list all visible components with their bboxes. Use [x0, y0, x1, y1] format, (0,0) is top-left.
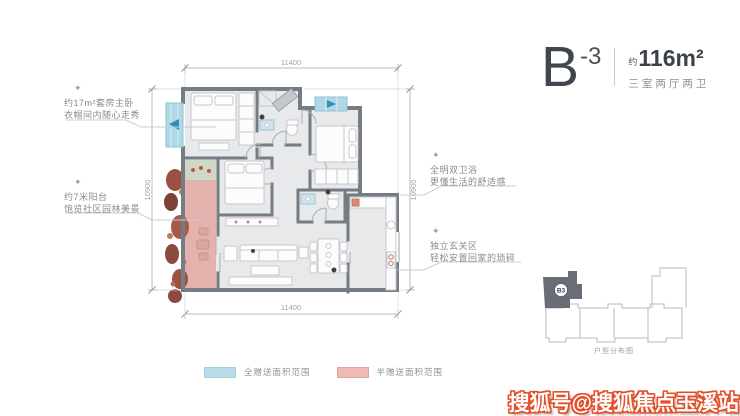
unit-variant: -3: [580, 45, 601, 69]
bay-window-left: [166, 103, 183, 147]
balcony-furniture: [197, 228, 209, 260]
title-block: B -3 约 116m² 三室两厅两卫: [541, 44, 709, 91]
layout-type: 三室两厅两卫: [628, 76, 709, 91]
dim-bottom: 11400: [281, 303, 301, 312]
bay-window-top: [315, 97, 347, 111]
annotation-subtitle: 饱览社区园林美景: [64, 203, 140, 216]
sparkle-icon: ✦: [74, 176, 140, 189]
sparkle-icon: ✦: [432, 149, 506, 162]
title-divider: [614, 48, 615, 86]
annotation-master-bedroom: ✦ 约17m²套房主卧 衣帽间内随心走秀: [64, 82, 140, 122]
dim-left: 10900: [143, 180, 152, 201]
legend-label: 半赠送面积范围: [377, 366, 444, 378]
annotation-subtitle: 衣帽间内随心走秀: [64, 109, 140, 122]
coffee-table: [251, 266, 279, 275]
key-plan-marker: B3: [557, 288, 566, 295]
sofa: [240, 245, 297, 261]
legend: 全赠送面积范围 半赠送面积范围: [204, 366, 443, 378]
annotation-title: 独立玄关区: [430, 240, 516, 253]
floorplan-page: 11400 11400 10900 10900 B3 户型分布图 ✦: [0, 0, 740, 416]
bedroom-2: [225, 161, 264, 204]
bedroom-3: [315, 126, 358, 184]
legend-label: 全赠送面积范围: [244, 366, 311, 378]
tv-cabinet: [229, 277, 292, 285]
annotation-balcony: ✦ 约7米阳台 饱览社区园林美景: [64, 176, 140, 216]
annotation-entry: ✦ 独立玄关区 轻松安置回家的琐碎: [430, 225, 516, 265]
sparkle-icon: ✦: [74, 82, 140, 95]
area-value: 116m²: [638, 47, 703, 70]
dim-top: 11400: [281, 58, 301, 67]
legend-item-full-area: 全赠送面积范围: [204, 366, 311, 378]
key-plan-caption: 户型分布图: [594, 346, 634, 355]
annotation-title: 约7米阳台: [64, 191, 140, 204]
annotation-subtitle: 轻松安置回家的琐碎: [430, 252, 516, 265]
legend-item-half-area: 半赠送面积范围: [337, 366, 444, 378]
sparkle-icon: ✦: [432, 225, 516, 238]
legend-swatch-blue: [204, 367, 236, 378]
area-prefix: 约: [628, 55, 637, 70]
annotation-subtitle: 更懂生活的舒适感: [430, 176, 506, 189]
annotation-bathrooms: ✦ 全明双卫浴 更懂生活的舒适感: [430, 149, 506, 189]
legend-swatch-pink: [337, 367, 369, 378]
dim-right: 10900: [409, 180, 418, 201]
key-plan: B3 户型分布图: [543, 268, 686, 355]
annotation-title: 全明双卫浴: [430, 164, 506, 177]
planter-strip: [185, 160, 216, 180]
balcony: [185, 160, 216, 288]
unit-letter: B: [541, 44, 577, 90]
dining: [310, 239, 347, 273]
master-wardrobe: [239, 93, 254, 145]
stove: [352, 199, 359, 206]
annotation-title: 约17m²套房主卧: [64, 97, 140, 110]
watermark: 搜狐号@搜狐焦点玉溪站: [509, 387, 739, 416]
